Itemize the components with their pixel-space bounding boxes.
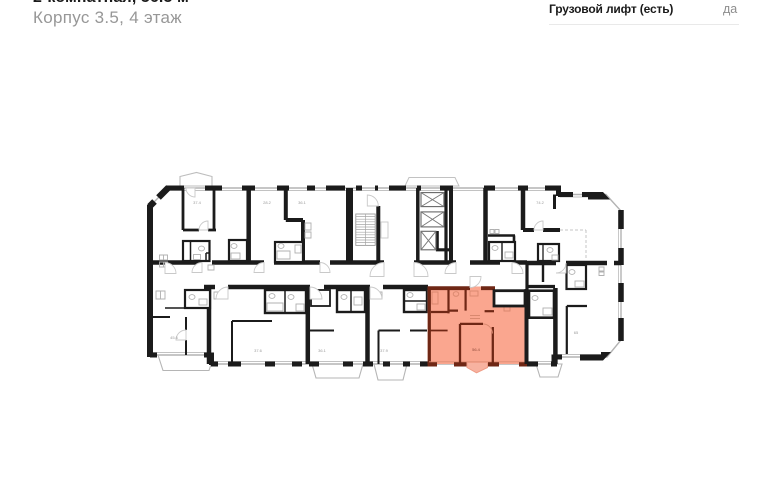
svg-text:37.4: 37.4 bbox=[193, 200, 202, 205]
svg-text:36.1: 36.1 bbox=[318, 348, 327, 353]
svg-text:65: 65 bbox=[574, 330, 579, 335]
svg-text:36.1: 36.1 bbox=[298, 200, 307, 205]
svg-text:37.6: 37.6 bbox=[254, 348, 263, 353]
svg-text:37.9: 37.9 bbox=[380, 348, 389, 353]
svg-text:74.2: 74.2 bbox=[536, 200, 545, 205]
svg-text:28.2: 28.2 bbox=[263, 200, 272, 205]
svg-text:56.4: 56.4 bbox=[472, 347, 481, 352]
svg-text:45.6: 45.6 bbox=[170, 335, 179, 340]
